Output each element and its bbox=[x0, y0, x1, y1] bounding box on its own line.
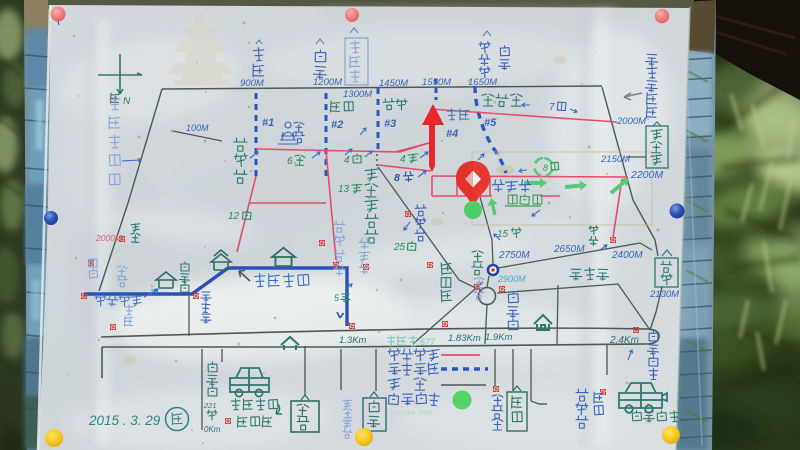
svg-text:#1: #1 bbox=[262, 117, 274, 129]
svg-text:#2: #2 bbox=[331, 119, 343, 131]
svg-text:7: 7 bbox=[549, 102, 555, 113]
svg-text:100M: 100M bbox=[186, 123, 209, 133]
svg-text:1200M: 1200M bbox=[313, 77, 342, 88]
svg-text:You are here: You are here bbox=[390, 408, 433, 417]
svg-text:6: 6 bbox=[287, 156, 293, 167]
svg-text:1.83Km: 1.83Km bbox=[448, 333, 481, 344]
svg-text:221: 221 bbox=[203, 401, 217, 410]
svg-text:8: 8 bbox=[543, 163, 548, 173]
svg-text:15: 15 bbox=[497, 229, 509, 240]
svg-text:2.4Km: 2.4Km bbox=[609, 335, 639, 346]
svg-text:1550M: 1550M bbox=[422, 77, 451, 88]
svg-text:2400M: 2400M bbox=[611, 250, 643, 261]
svg-text:2650M: 2650M bbox=[553, 244, 585, 255]
svg-text:12: 12 bbox=[228, 211, 240, 222]
svg-text:25: 25 bbox=[393, 242, 406, 253]
svg-text:2015 . 3. 29: 2015 . 3. 29 bbox=[88, 413, 161, 428]
svg-text:677: 677 bbox=[420, 337, 436, 347]
svg-text:13: 13 bbox=[338, 184, 350, 195]
svg-text:2900M: 2900M bbox=[497, 274, 526, 284]
svg-text:1.3Km: 1.3Km bbox=[339, 335, 367, 346]
svg-text:1.9Km: 1.9Km bbox=[485, 332, 513, 343]
svg-text:N: N bbox=[123, 96, 131, 107]
svg-text:#5: #5 bbox=[484, 117, 497, 129]
svg-text:2000M: 2000M bbox=[95, 233, 123, 243]
svg-text:1300M: 1300M bbox=[343, 89, 372, 100]
svg-text:2200M: 2200M bbox=[630, 169, 663, 181]
svg-text:1650M: 1650M bbox=[468, 77, 497, 88]
svg-text:900M: 900M bbox=[240, 78, 264, 89]
svg-text:0Km: 0Km bbox=[204, 425, 221, 434]
svg-text:4: 4 bbox=[344, 155, 350, 166]
svg-text:1450M: 1450M bbox=[379, 78, 408, 89]
svg-text:#4: #4 bbox=[446, 128, 458, 140]
svg-text:4: 4 bbox=[400, 154, 406, 165]
svg-text:2130M: 2130M bbox=[649, 289, 679, 300]
svg-text:8: 8 bbox=[394, 172, 400, 184]
svg-text:2000M: 2000M bbox=[616, 116, 646, 127]
svg-text:2750M: 2750M bbox=[498, 250, 530, 261]
svg-text:2150M: 2150M bbox=[600, 154, 630, 165]
svg-text:#3: #3 bbox=[384, 118, 396, 130]
